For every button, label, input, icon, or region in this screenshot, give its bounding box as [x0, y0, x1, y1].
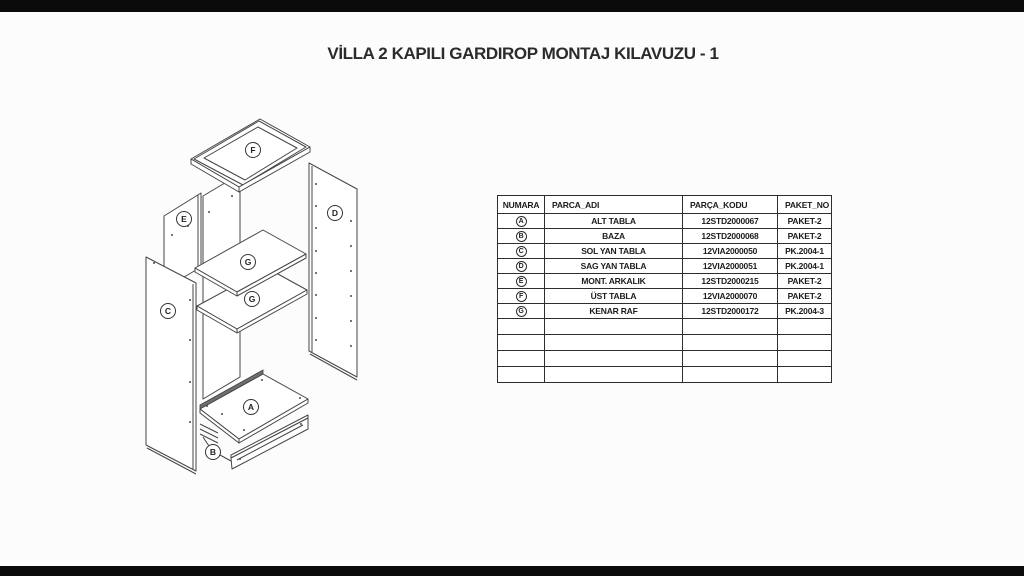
table-row: D SAG YAN TABLA 12VIA2000051 PK.2004-1 [498, 259, 832, 274]
package-no: PAKET-2 [778, 289, 832, 304]
part-letter-badge: G [516, 306, 527, 317]
empty-table-row [498, 335, 832, 351]
part-code: 12STD2000172 [683, 304, 778, 319]
callout-a: A [244, 400, 259, 415]
parts-table: NUMARA PARCA_ADI PARÇA_KODU PAKET_NO A A… [497, 195, 832, 383]
table-row: F ÜST TABLA 12VIA2000070 PAKET-2 [498, 289, 832, 304]
svg-text:G: G [245, 257, 252, 267]
part-letter-badge: A [516, 216, 527, 227]
header-paket-no: PAKET_NO [778, 196, 832, 214]
svg-text:G: G [249, 294, 256, 304]
header-parca-kodu: PARÇA_KODU [683, 196, 778, 214]
svg-text:A: A [248, 402, 254, 412]
svg-text:F: F [250, 145, 255, 155]
part-letter-badge: E [516, 276, 527, 287]
header-numara: NUMARA [498, 196, 545, 214]
part-code: 12VIA2000051 [683, 259, 778, 274]
table-row: C SOL YAN TABLA 12VIA2000050 PK.2004-1 [498, 244, 832, 259]
package-no: PK.2004-1 [778, 259, 832, 274]
part-name: BAZA [545, 229, 683, 244]
part-letter-badge: D [516, 261, 527, 272]
part-name: KENAR RAF [545, 304, 683, 319]
callout-d: D [328, 206, 343, 221]
part-letter-badge: F [516, 291, 527, 302]
callout-e: E [177, 212, 192, 227]
package-no: PK.2004-3 [778, 304, 832, 319]
svg-text:C: C [165, 306, 171, 316]
part-letter-badge: B [516, 231, 527, 242]
package-no: PK.2004-1 [778, 244, 832, 259]
part-code: 12STD2000068 [683, 229, 778, 244]
header-parca-adi: PARCA_ADI [545, 196, 683, 214]
table-row: G KENAR RAF 12STD2000172 PK.2004-3 [498, 304, 832, 319]
part-code: 12STD2000067 [683, 214, 778, 229]
table-row: B BAZA 12STD2000068 PAKET-2 [498, 229, 832, 244]
part-code: 12VIA2000070 [683, 289, 778, 304]
svg-text:B: B [210, 447, 216, 457]
part-name: SAG YAN TABLA [545, 259, 683, 274]
panel-d-right-side [309, 163, 357, 380]
package-no: PAKET-2 [778, 274, 832, 289]
callout-c: C [161, 304, 176, 319]
callout-f: F [246, 143, 261, 158]
package-no: PAKET-2 [778, 214, 832, 229]
part-name: MONT. ARKALIK [545, 274, 683, 289]
table-row: A ALT TABLA 12STD2000067 PAKET-2 [498, 214, 832, 229]
package-no: PAKET-2 [778, 229, 832, 244]
panel-c-left-side [146, 257, 196, 474]
part-name: ÜST TABLA [545, 289, 683, 304]
part-code: 12STD2000215 [683, 274, 778, 289]
part-letter-badge: C [516, 246, 527, 257]
empty-table-row [498, 367, 832, 383]
callout-b: B [206, 445, 221, 460]
manual-page: VİLLA 2 KAPILI GARDIROP MONTAJ KILAVUZU … [0, 0, 1024, 576]
callout-g1: G [241, 255, 256, 270]
svg-text:E: E [181, 214, 187, 224]
table-header-row: NUMARA PARCA_ADI PARÇA_KODU PAKET_NO [498, 196, 832, 214]
callout-g2: G [245, 292, 260, 307]
empty-table-row [498, 319, 832, 335]
part-code: 12VIA2000050 [683, 244, 778, 259]
part-name: SOL YAN TABLA [545, 244, 683, 259]
table-row: E MONT. ARKALIK 12STD2000215 PAKET-2 [498, 274, 832, 289]
part-name: ALT TABLA [545, 214, 683, 229]
empty-table-row [498, 351, 832, 367]
svg-text:D: D [332, 208, 338, 218]
